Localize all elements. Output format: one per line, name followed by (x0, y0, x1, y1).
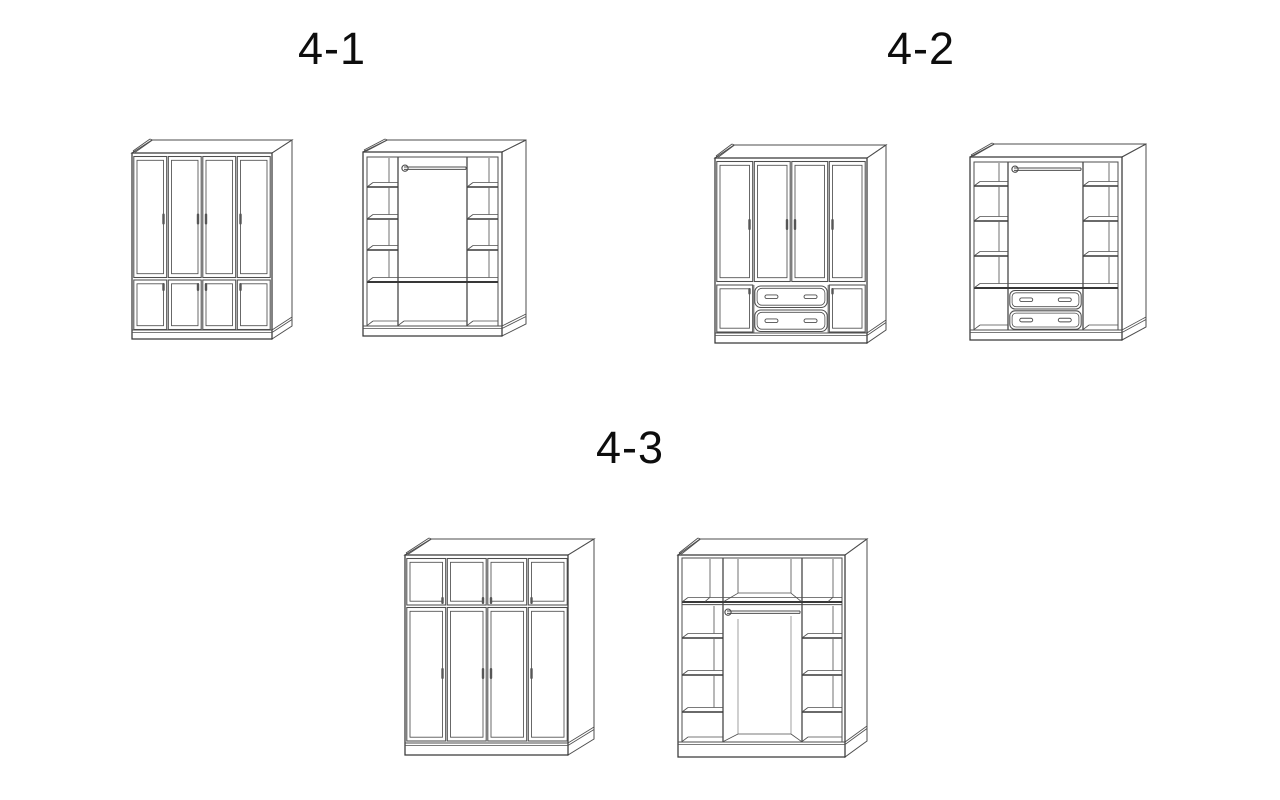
wardrobe-4-2-closed-figure (708, 138, 886, 347)
wardrobe-4-2-interior-figure (963, 138, 1150, 350)
group-4-1-label: 4-1 (298, 26, 366, 71)
wardrobe-4-1-closed-figure (128, 136, 294, 344)
group-4-2-label: 4-2 (887, 26, 955, 71)
wardrobe-4-3-interior-figure (670, 526, 870, 761)
group-4-3-label: 4-3 (596, 425, 664, 470)
wardrobe-4-3-closed-figure (402, 526, 602, 761)
wardrobe-diagram-canvas: 4-1 4-2 4-3 (0, 0, 1280, 800)
wardrobe-4-1-interior-figure (360, 136, 542, 346)
